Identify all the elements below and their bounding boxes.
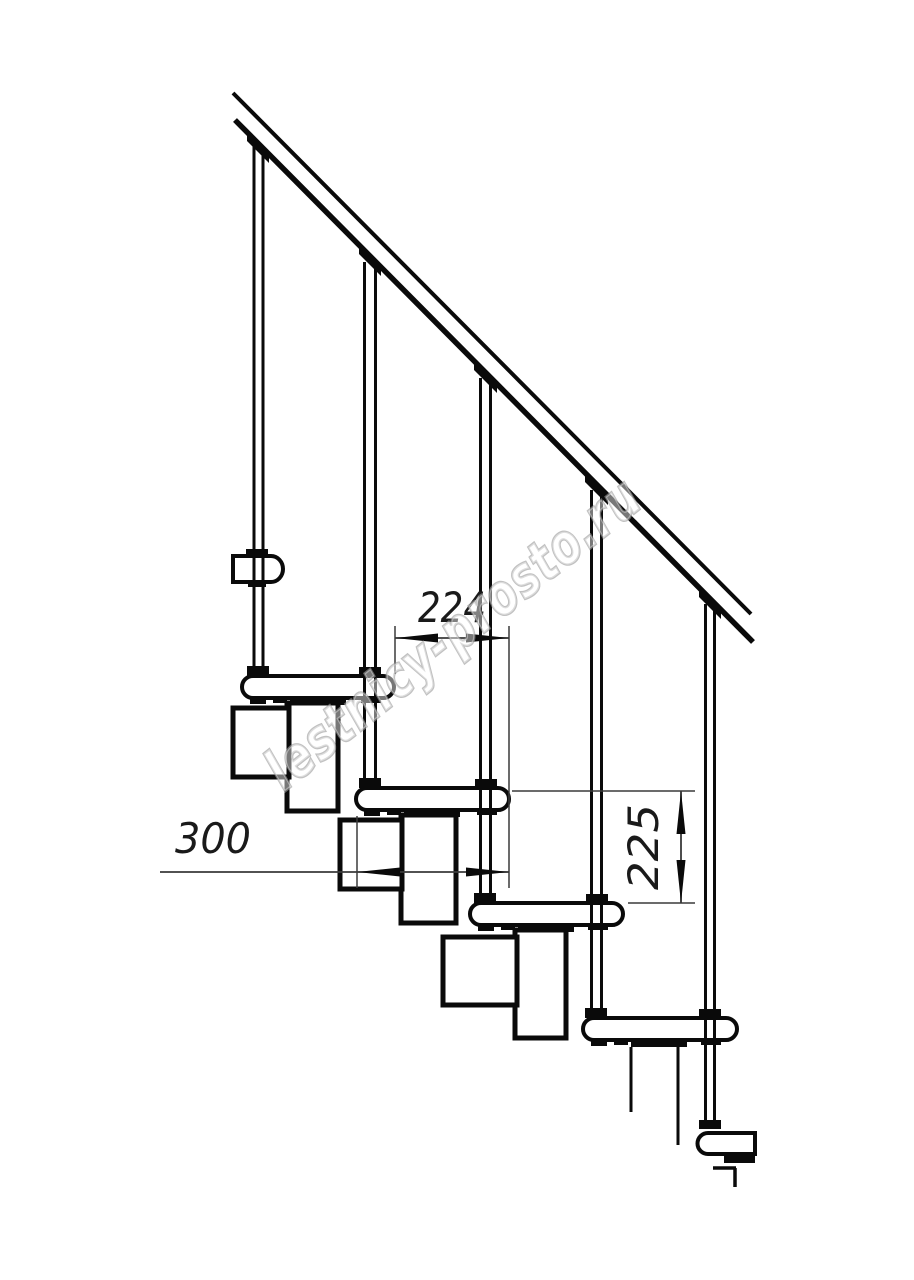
baluster-connector: [474, 893, 496, 903]
baluster-connector: [246, 549, 268, 557]
baluster-connector: [586, 894, 608, 903]
baluster-connector: [475, 779, 497, 788]
mount-tab: [387, 809, 401, 815]
mount-tab: [250, 696, 266, 704]
mount-strip: [518, 923, 574, 932]
baluster-connector: [248, 583, 266, 587]
baluster-connector: [359, 778, 381, 788]
base-mount: [698, 1120, 756, 1187]
arrow-down-icon: [677, 860, 686, 903]
baluster-connector: [699, 1009, 721, 1018]
baluster-connector: [477, 810, 497, 815]
baluster-4: [592, 490, 602, 1018]
base-cut-line: [713, 1168, 736, 1187]
dimension-label-300: 300: [175, 814, 251, 863]
mount-tab: [478, 923, 494, 931]
mount-tab: [273, 697, 287, 703]
arrow-up-icon: [677, 791, 686, 834]
baluster-1: [254, 146, 263, 676]
tread-3: [356, 788, 509, 810]
base-bar: [698, 1133, 756, 1154]
staircase-drawing: 224 300 225 lestnicy-prosto.ru: [0, 0, 914, 1280]
baluster-connector: [699, 1120, 721, 1129]
tread-1: [233, 556, 283, 582]
baluster-connector: [701, 1040, 721, 1045]
mount-tab: [591, 1038, 607, 1046]
stringer-module: [515, 930, 566, 1038]
baluster-5: [706, 604, 715, 1127]
stringer-cut-lines: [631, 1047, 678, 1145]
dimension-225: 225: [512, 791, 695, 903]
base-strip: [724, 1152, 755, 1163]
stringer-module: [340, 820, 402, 889]
stringer-module: [401, 815, 456, 923]
dimension-label-225: 225: [619, 804, 668, 890]
mount-tab: [501, 924, 515, 930]
drawing-svg: 224 300 225 lestnicy-prosto.ru: [0, 0, 914, 1280]
baluster-connector: [585, 1008, 607, 1018]
watermark-text: lestnicy-prosto.ru: [252, 464, 654, 802]
arrow-right-icon: [466, 868, 509, 877]
baluster-connector: [247, 666, 269, 676]
baluster-connector: [588, 925, 608, 930]
mount-tab: [364, 808, 380, 816]
mount-strip: [631, 1038, 687, 1047]
stringer-module: [443, 937, 517, 1005]
mount-strip: [404, 808, 460, 817]
mount-tab: [614, 1039, 628, 1045]
